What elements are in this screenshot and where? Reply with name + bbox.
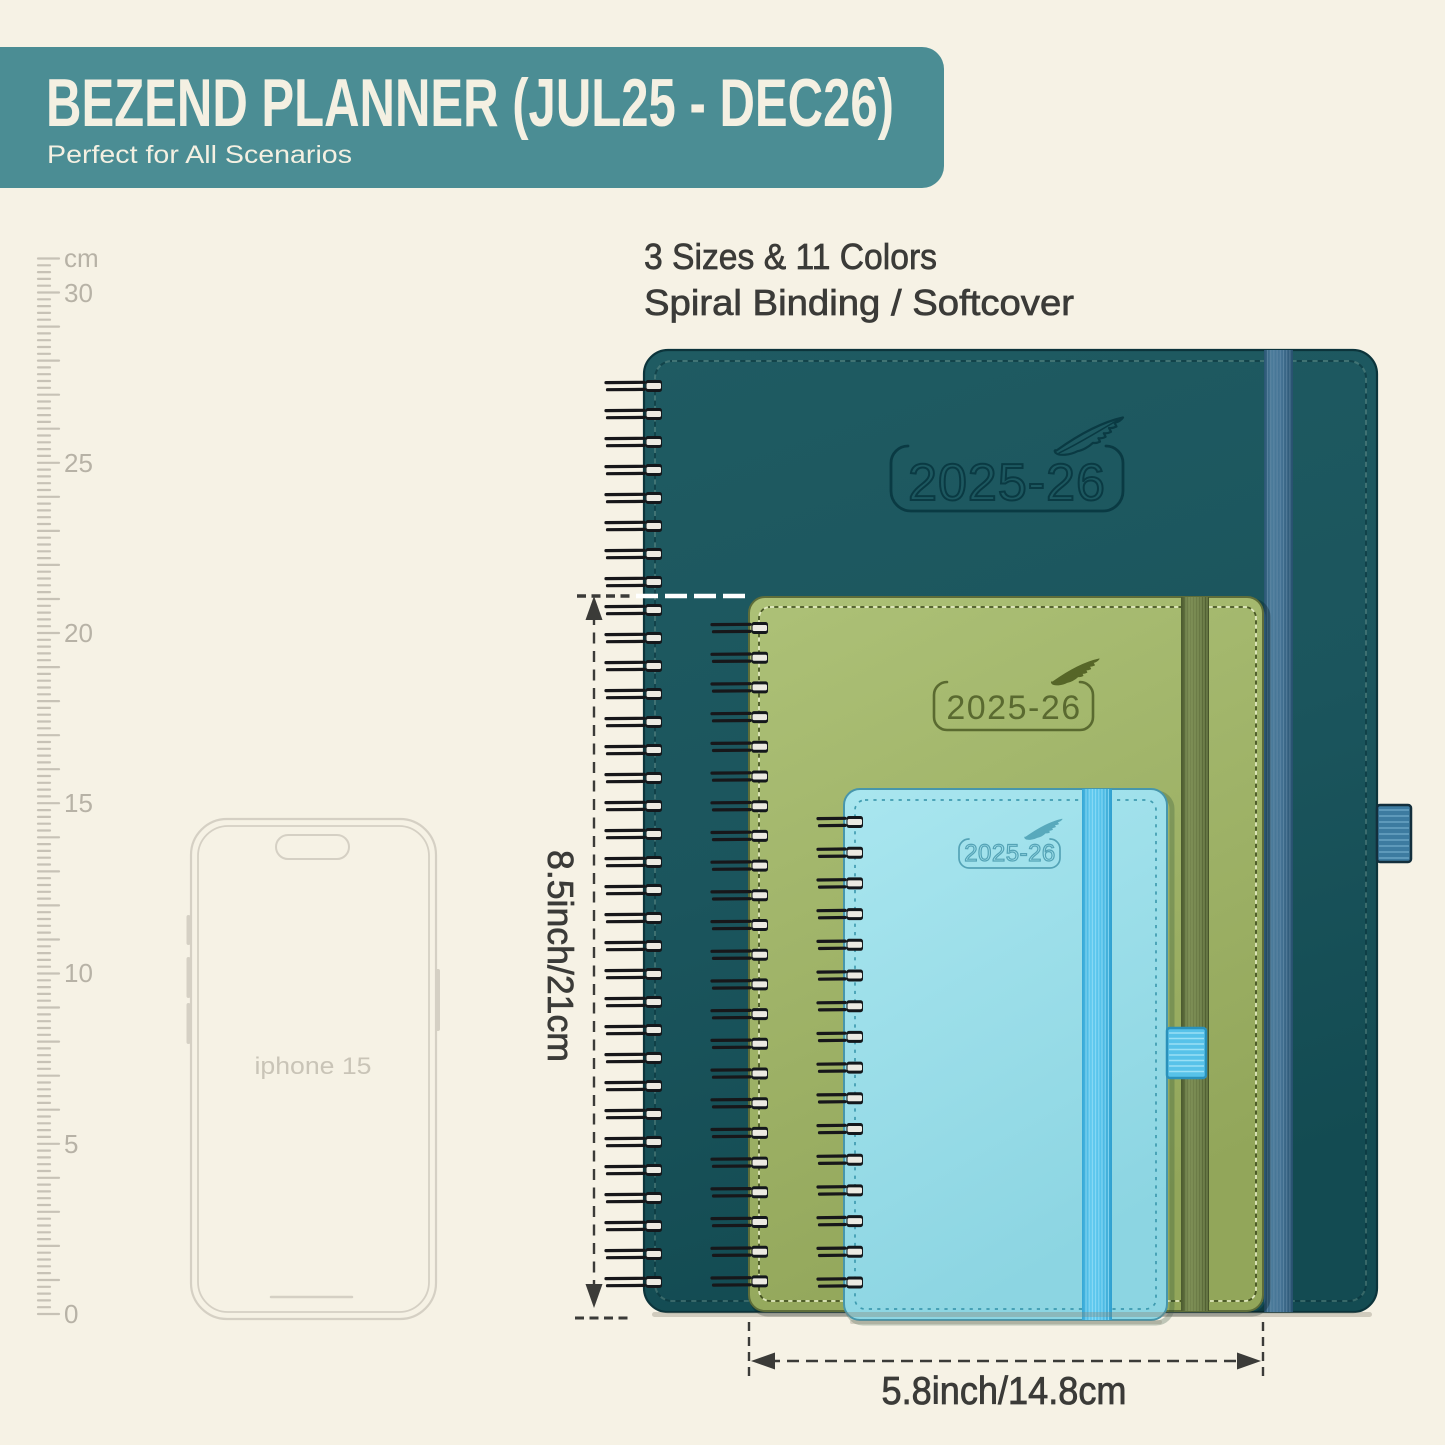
svg-text:2025-26: 2025-26 (908, 454, 1106, 512)
svg-text:3 Sizes & 11 Colors: 3 Sizes & 11 Colors (644, 236, 937, 277)
svg-text:cm: cm (64, 243, 99, 273)
svg-text:Perfect for All Scenarios: Perfect for All Scenarios (47, 141, 352, 169)
svg-text:15: 15 (64, 788, 93, 818)
svg-text:0: 0 (64, 1299, 78, 1329)
svg-text:2025-26: 2025-26 (964, 840, 1056, 867)
svg-text:2025-26: 2025-26 (946, 689, 1081, 727)
svg-text:8.5inch/21cm: 8.5inch/21cm (540, 850, 581, 1062)
svg-text:25: 25 (64, 448, 93, 478)
svg-text:5: 5 (64, 1129, 78, 1159)
svg-text:30: 30 (64, 278, 93, 308)
svg-text:10: 10 (64, 958, 93, 988)
svg-text:BEZEND PLANNER (JUL25 - DEC26): BEZEND PLANNER (JUL25 - DEC26) (46, 65, 894, 141)
svg-text:Spiral Binding / Softcover: Spiral Binding / Softcover (644, 282, 1074, 323)
svg-text:iphone 15: iphone 15 (255, 1053, 372, 1080)
svg-text:5.8inch/14.8cm: 5.8inch/14.8cm (882, 1370, 1127, 1413)
svg-text:20: 20 (64, 618, 93, 648)
